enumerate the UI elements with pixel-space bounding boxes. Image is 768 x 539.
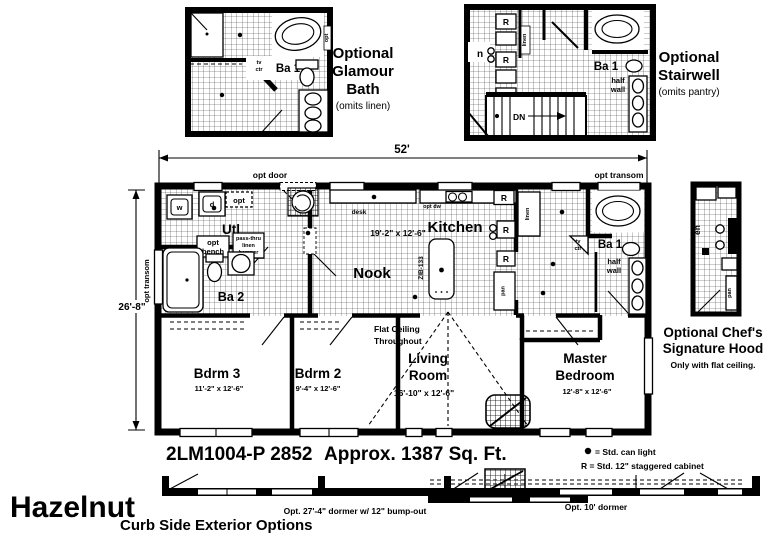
sink <box>305 120 321 132</box>
legend-can-light-dot <box>585 448 591 454</box>
floorplan-drawing: opt tv ctr Ba 1 Optional Glamour Bath (o… <box>0 0 768 539</box>
inset-subtitle: (omits pantry) <box>658 87 719 98</box>
sink <box>633 96 644 110</box>
opt-door-label: opt door <box>253 170 288 180</box>
bathtub <box>163 248 203 312</box>
flat-ceiling-note: Throughout <box>374 336 422 346</box>
inset-title: Optional Chef's <box>663 325 762 340</box>
room-label-master: Bedroom <box>555 368 614 383</box>
passthru-label: linen <box>242 243 255 249</box>
sink <box>232 255 250 273</box>
opt-window-label: opt <box>324 34 330 43</box>
room-label-bdrm2: Bdrm 2 <box>295 366 342 381</box>
dormer-10-label: Opt. 10' dormer <box>565 502 628 512</box>
staggered-cabinet-label: R <box>503 55 509 65</box>
sink <box>305 93 321 105</box>
main-floor-plan: opt door opt transom opt transom w d opt… <box>142 170 653 437</box>
dimension-26ft-8in: 26'-8" <box>110 190 154 430</box>
staggered-cabinet-label: R <box>503 254 509 264</box>
pantry-label: pan <box>501 285 507 295</box>
room-label-ba1: Ba 1 <box>594 61 619 73</box>
opt-dw-label: opt dw <box>423 204 441 210</box>
sink <box>623 243 640 256</box>
model-number: 2LM1004-P 2852 <box>166 444 312 465</box>
opt-transom-top-label: opt transom <box>594 170 644 180</box>
inset-glamour-bath: opt tv ctr Ba 1 Optional Glamour Bath (o… <box>188 10 394 134</box>
burner <box>488 56 494 62</box>
kitchen-partial-label: en <box>692 225 702 235</box>
master-dimension: 12'-8" x 12'-6" <box>562 387 611 396</box>
sink <box>305 107 321 119</box>
burner <box>490 233 497 240</box>
island-model-label: ZIB-133 <box>418 256 425 280</box>
toilet-tank <box>206 254 223 262</box>
room-label-nook: Nook <box>353 265 391 282</box>
washer-label: w <box>176 203 183 212</box>
pantry-label: pan <box>727 287 733 297</box>
inset-subtitle: (omits linen) <box>336 101 390 112</box>
bdrm2-dimension: 9'-4" x 12'-6" <box>296 384 341 393</box>
inset-title: Optional <box>659 49 720 66</box>
flat-ceiling-note: Flat Ceiling <box>374 324 420 334</box>
sink <box>632 279 643 293</box>
legend-can-light: = Std. can light <box>595 447 656 457</box>
stairs-down-label: DN <box>513 112 525 122</box>
chefs-hood <box>728 218 737 254</box>
inset-subtitle: Only with flat ceiling. <box>670 360 755 370</box>
opt-transom-left-label: opt transom <box>142 259 151 303</box>
room-label-ba2: Ba 2 <box>218 290 244 304</box>
inset-stairwell: n R R R linen Ba 1 half wall DN <box>467 7 720 138</box>
room-label-living: Living <box>408 351 448 366</box>
half-wall-label: wall <box>606 266 621 275</box>
half-wall-label: half <box>611 76 625 85</box>
half-wall-label: wall <box>610 85 625 94</box>
sink <box>632 261 643 275</box>
inset-chefs-hood: en pan Optional Chef's Signature Hood On… <box>663 184 764 370</box>
staggered-cabinet-label: R <box>503 17 509 27</box>
plan-name: Hazelnut <box>10 491 135 524</box>
inset-title: Optional <box>333 45 394 62</box>
opt-box-label: opt <box>233 196 245 205</box>
inset-title: Bath <box>346 81 379 98</box>
ctr-label: ctr <box>574 246 582 252</box>
dimension-52ft: 52' <box>159 144 647 183</box>
staggered-cabinet-label: R <box>501 193 507 203</box>
burner <box>488 48 494 54</box>
bdrm3-dimension: 11'-2" x 12'-6" <box>195 384 244 393</box>
square-footage: Approx. 1387 Sq. Ft. <box>324 444 507 465</box>
linen-label: linen <box>522 33 528 46</box>
sink <box>632 296 643 310</box>
sink <box>633 113 644 127</box>
ctr-label: ctr <box>255 67 263 73</box>
kitchen-partial-label: n <box>477 49 483 60</box>
can-light-dot <box>238 33 242 37</box>
room-label-living: Room <box>409 368 447 383</box>
inset-title: Glamour <box>332 63 394 80</box>
curb-side-elevation: Opt. 27'-4" dormer w/ 12" bump-out Opt. … <box>162 469 760 516</box>
toilet <box>300 68 314 86</box>
room-label-ba1: Ba 1 <box>598 239 623 251</box>
room-label-bdrm3: Bdrm 3 <box>194 366 241 381</box>
living-dimension: 16'-10" x 12'-6" <box>394 388 454 398</box>
legend-staggered-cabinet: R = Std. 12" staggered cabinet <box>581 461 704 471</box>
linen-label: linen <box>525 207 531 220</box>
toilet <box>208 263 222 282</box>
dormer-27-label: Opt. 27'-4" dormer w/ 12" bump-out <box>284 506 427 516</box>
staggered-cabinet-label: R <box>503 225 509 235</box>
desk-label: desk <box>352 209 367 216</box>
burner <box>716 225 724 233</box>
opt-bench-label: opt <box>207 238 219 247</box>
inset-title: Stairwell <box>658 67 720 84</box>
can-light-dot <box>220 93 224 97</box>
half-wall-label: half <box>607 257 621 266</box>
width-dimension-label: 52' <box>394 144 410 156</box>
floorplan-page: opt tv ctr Ba 1 Optional Glamour Bath (o… <box>0 0 768 539</box>
living-room: Flat Ceiling Throughout Living Room 16'-… <box>368 312 530 428</box>
curb-side-title: Curb Side Exterior Options <box>120 517 313 534</box>
sink <box>626 60 642 72</box>
room-label-master: Master <box>563 351 607 366</box>
burner <box>716 241 724 249</box>
room-label-kitchen: Kitchen <box>427 219 482 236</box>
sink <box>633 79 644 93</box>
passthru-label: pass-thru <box>236 236 261 242</box>
nook-dimension: 19'-2" x 12'-6" <box>370 228 426 238</box>
burner <box>490 225 497 232</box>
inset-title: Signature Hood <box>663 341 764 356</box>
can-light-square <box>702 248 709 255</box>
